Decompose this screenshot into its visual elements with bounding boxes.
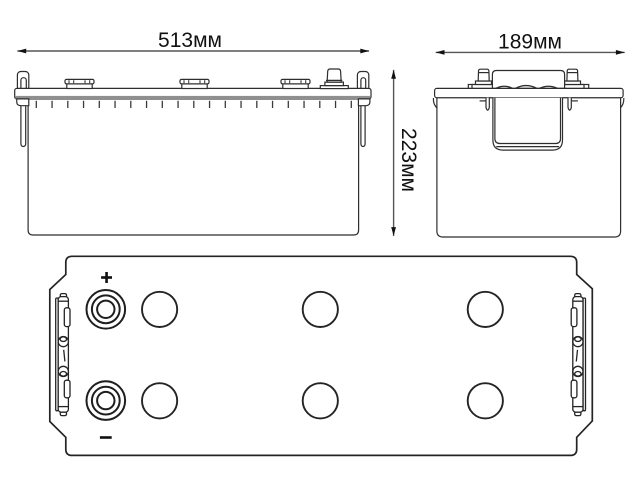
svg-text:223мм: 223мм <box>397 128 420 192</box>
svg-text:189мм: 189мм <box>498 30 562 53</box>
svg-text:513мм: 513мм <box>158 29 222 52</box>
